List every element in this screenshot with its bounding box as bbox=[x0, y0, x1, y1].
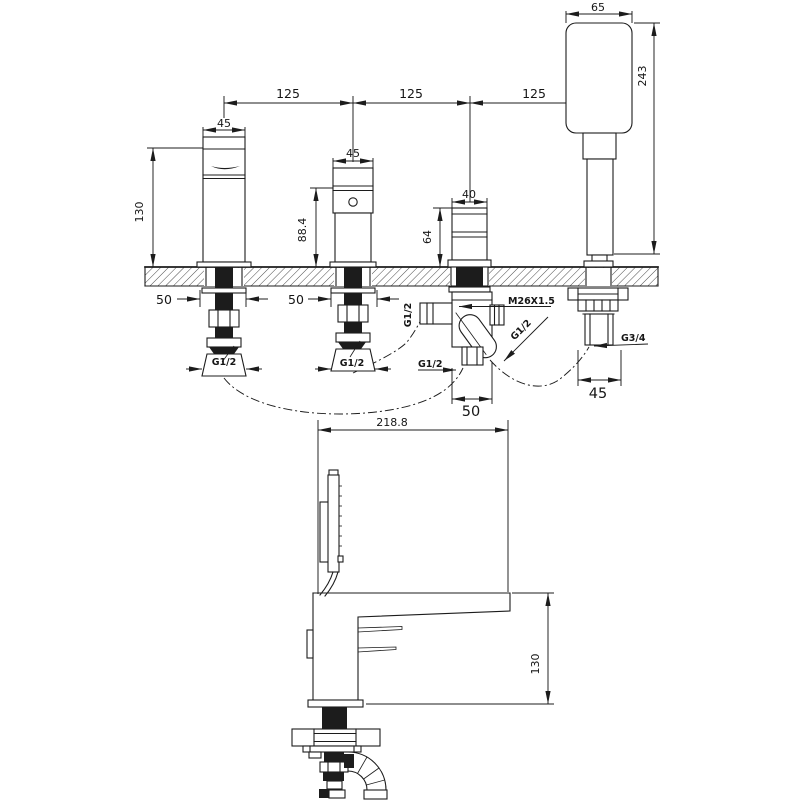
handshower-head bbox=[566, 23, 632, 133]
spout-washer bbox=[202, 288, 246, 293]
profile-shank bbox=[322, 707, 347, 729]
hose-centerline-3 bbox=[490, 347, 589, 386]
spout-arm-outline bbox=[313, 593, 510, 700]
valve-base-flange bbox=[330, 262, 376, 267]
label-diverter-top-thread: M26X1.5 bbox=[508, 296, 555, 307]
label-diverter-outlet-thread: G1/2 bbox=[509, 318, 534, 343]
pitch-dimensions: 125 125 125 bbox=[224, 86, 599, 202]
handshower-unit: G3/4 65 243 45 bbox=[566, 1, 660, 402]
valve-washer bbox=[331, 288, 375, 293]
diverter-knob bbox=[452, 208, 487, 260]
label-valve-thread: G1/2 bbox=[340, 358, 365, 369]
spout-body bbox=[203, 137, 245, 262]
profile-base-flange bbox=[308, 700, 363, 707]
dim-label-pitch-3: 125 bbox=[522, 86, 546, 101]
valve-shank bbox=[344, 267, 362, 291]
label-spout-thread: G1/2 bbox=[212, 357, 237, 368]
diverter-base-flange bbox=[448, 260, 491, 267]
dim-label-pitch-1: 125 bbox=[276, 86, 300, 101]
dim-label-diverter-width: 40 bbox=[462, 188, 476, 201]
handshower-side bbox=[328, 475, 339, 572]
dim-label-spout-hole: 50 bbox=[156, 292, 172, 307]
elbow-outlet bbox=[364, 790, 387, 799]
diverter-unit: M26X1.5 G1/2 G1/2 G1/2 40 64 50 bbox=[403, 188, 555, 420]
diverter-top-port bbox=[490, 305, 504, 325]
drawing-page: 125 125 125 G1/2 bbox=[0, 0, 800, 800]
diverter-shank bbox=[456, 267, 483, 286]
mounting-hardware-profile bbox=[292, 707, 387, 799]
dim-label-handshower-body-width: 45 bbox=[589, 386, 607, 402]
valve-body bbox=[335, 213, 371, 262]
handshower-escutcheon bbox=[584, 261, 613, 267]
handshower-grip bbox=[587, 159, 613, 255]
dim-label-handshower-height: 243 bbox=[636, 66, 649, 87]
diverter-plate bbox=[449, 287, 490, 292]
valve-unit: G1/2 45 88.4 50 bbox=[288, 147, 399, 371]
profile-bracket bbox=[292, 729, 380, 746]
aerator-slot-1 bbox=[358, 627, 402, 633]
spout-shank bbox=[215, 267, 233, 291]
dim-label-diverter-height: 64 bbox=[421, 230, 434, 244]
handshower-profile bbox=[320, 470, 343, 596]
hose-centerlines bbox=[224, 320, 589, 414]
dim-label-profile-height: 130 bbox=[529, 654, 542, 675]
valve-nut bbox=[338, 305, 368, 322]
spout-nut bbox=[209, 310, 239, 327]
dim-label-valve-hole: 50 bbox=[288, 292, 304, 307]
side-view: 218.8 bbox=[292, 416, 554, 799]
handshower-grip-top bbox=[583, 133, 616, 159]
front-view: 125 125 125 G1/2 bbox=[133, 1, 660, 420]
label-diverter-side-thread: G1/2 bbox=[403, 303, 414, 328]
dim-label-depth: 218.8 bbox=[376, 416, 408, 429]
dim-label-valve-width: 45 bbox=[346, 147, 360, 160]
handshower-nut bbox=[578, 300, 618, 311]
side-clip bbox=[307, 630, 313, 658]
elbow-fitting bbox=[344, 752, 387, 799]
profile-nut bbox=[320, 762, 348, 772]
spout-profile: 130 bbox=[307, 593, 554, 707]
depth-dimension: 218.8 bbox=[318, 416, 508, 594]
hose-centerline-1 bbox=[224, 368, 463, 414]
dim-label-diverter-body-width: 50 bbox=[462, 404, 480, 420]
aerator-slot-2 bbox=[358, 647, 396, 652]
label-diverter-bottom-thread: G1/2 bbox=[418, 359, 443, 370]
handshower-pipe bbox=[585, 314, 613, 345]
dim-label-spout-height: 130 bbox=[133, 202, 146, 223]
label-handshower-thread: G3/4 bbox=[621, 333, 646, 344]
dim-label-valve-height: 88.4 bbox=[296, 218, 309, 243]
diverter-side-port bbox=[420, 303, 452, 324]
shower-hose-1 bbox=[320, 572, 333, 595]
dim-label-pitch-2: 125 bbox=[399, 86, 423, 101]
spout-base-flange bbox=[197, 262, 251, 267]
dim-label-spout-width: 45 bbox=[217, 117, 231, 130]
spout-unit: G1/2 45 130 50 bbox=[133, 117, 268, 376]
technical-drawing: 125 125 125 G1/2 bbox=[0, 0, 800, 800]
diverter-tailpiece bbox=[462, 347, 483, 365]
dim-label-handshower-width: 65 bbox=[591, 1, 605, 14]
